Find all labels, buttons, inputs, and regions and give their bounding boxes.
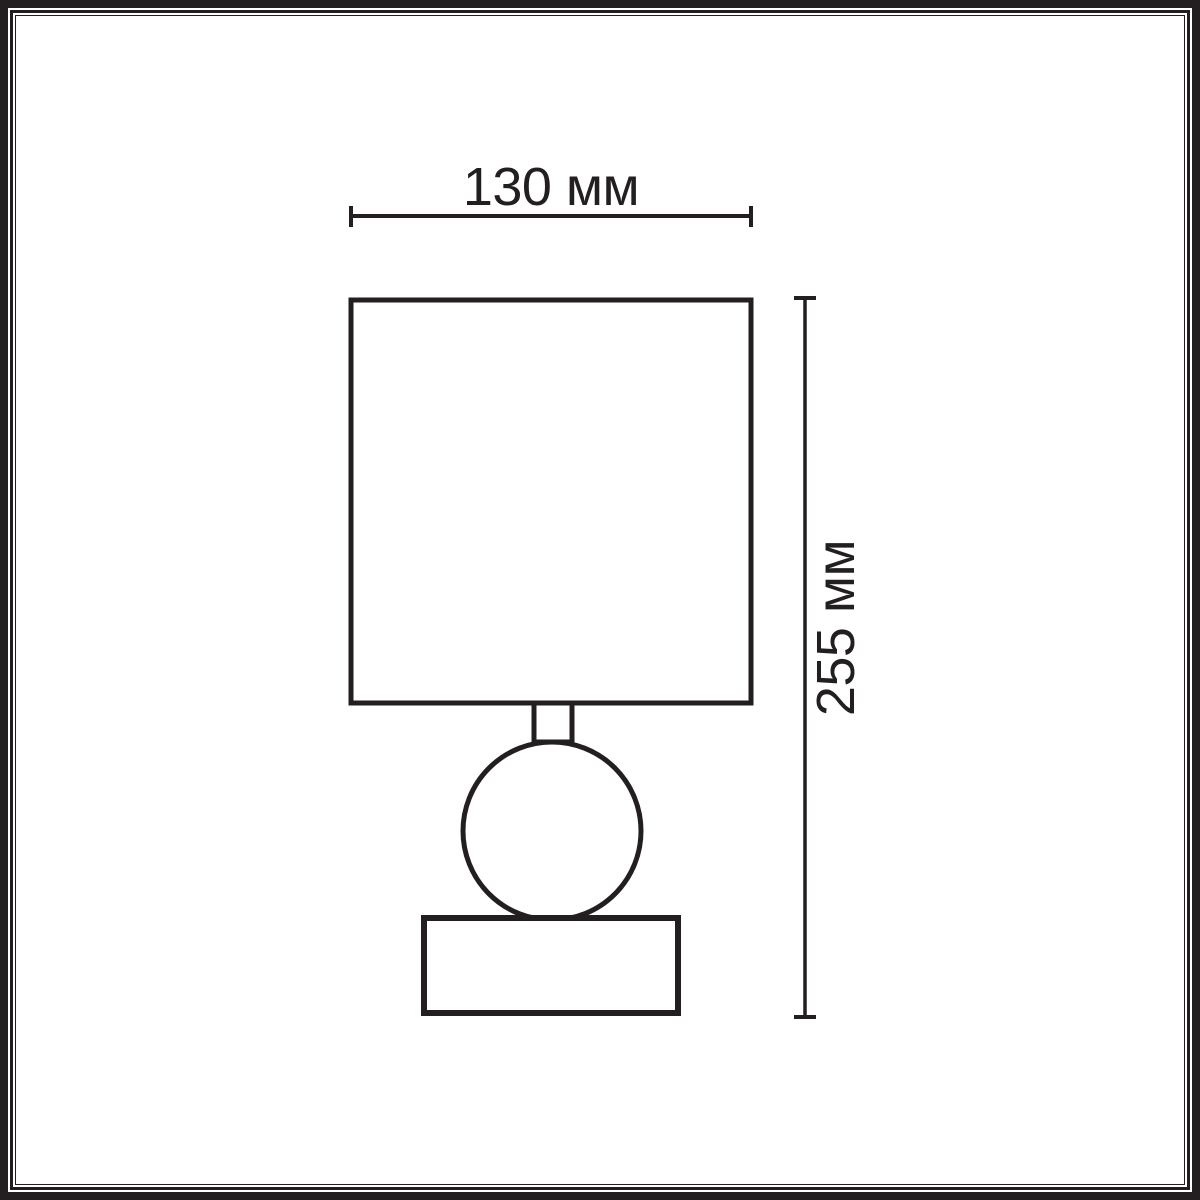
diagram-canvas: 130 мм 255 мм [0, 0, 1200, 1200]
lampshade-outline [351, 300, 751, 703]
lamp-base-outline [424, 918, 678, 1013]
height-dimension-label: 255 мм [809, 540, 863, 716]
width-dimension-label: 130 мм [351, 160, 751, 214]
lamp-neck-outline [534, 703, 572, 742]
lamp-ball-outline [463, 742, 641, 920]
